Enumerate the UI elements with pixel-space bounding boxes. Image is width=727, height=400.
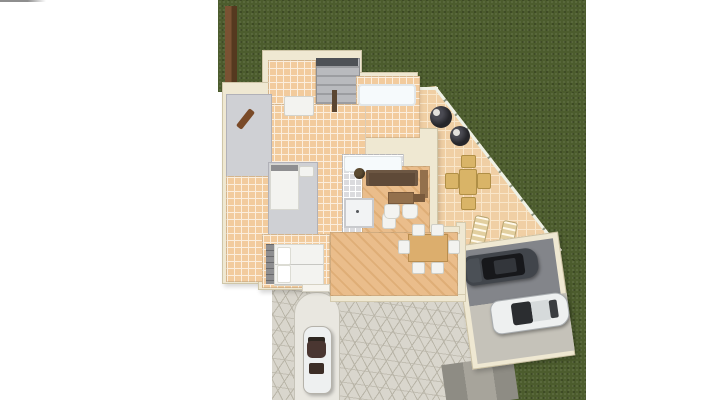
sofa: [366, 170, 418, 186]
dining-chair: [398, 240, 410, 254]
patio-chair: [445, 173, 459, 189]
floorplan-3d-viewport[interactable]: [0, 0, 727, 400]
car-cabin: [309, 363, 324, 374]
nightstand: [299, 166, 314, 177]
dining-chair: [431, 224, 444, 236]
patio-chair: [461, 197, 476, 210]
convertible-roof: [307, 341, 326, 358]
car-hood: [465, 258, 482, 284]
coffee-table: [388, 192, 414, 204]
bed-headboard: [271, 165, 298, 171]
armchair: [402, 204, 418, 219]
dining-chair: [412, 224, 425, 236]
white-convertible-car: [303, 326, 332, 394]
terrace-railing: [418, 87, 438, 90]
dining-chair: [431, 262, 444, 274]
round-lounge-chair: [450, 126, 470, 146]
wardrobe: [316, 58, 358, 66]
stair-railing-post: [332, 90, 337, 112]
shower-tray: [344, 198, 374, 228]
pillow: [277, 247, 291, 265]
side-table: [414, 194, 425, 202]
bed-headboard: [266, 244, 274, 284]
dining-chair: [448, 240, 460, 254]
round-lounge-chair: [430, 106, 452, 128]
dining-table: [408, 234, 448, 262]
study-floor: [226, 94, 272, 178]
rear-window: [548, 299, 558, 318]
patio-chair: [477, 173, 491, 189]
patio-chair: [461, 155, 476, 168]
carport: [455, 232, 575, 370]
window-edge-artifact: [0, 0, 46, 2]
patio-table: [459, 169, 477, 195]
armchair: [384, 204, 400, 219]
bed: [270, 164, 299, 210]
bathtub: [358, 84, 416, 106]
planter: [354, 168, 365, 179]
dining-chair: [412, 262, 425, 274]
pillow: [277, 265, 291, 283]
entry-door-step: [302, 284, 330, 292]
dresser: [284, 96, 314, 116]
